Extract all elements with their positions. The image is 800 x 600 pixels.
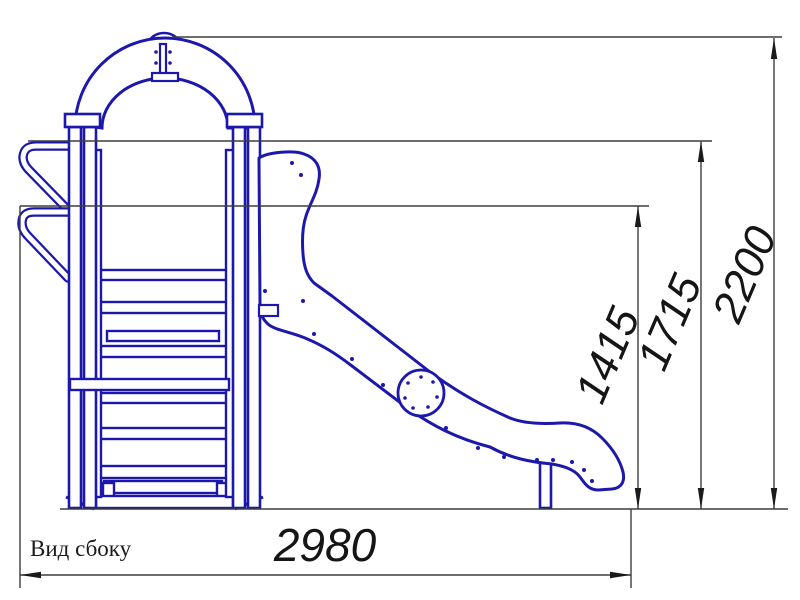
arch-connector-plate <box>160 44 166 76</box>
drawing-canvas: 1415 1715 2200 2980 Вид сбоку <box>0 0 800 600</box>
post-tube <box>84 127 96 508</box>
platform-floor-edge <box>259 305 278 316</box>
slide-support-leg <box>540 462 551 508</box>
ladder-rung <box>99 428 229 439</box>
arrowhead-left <box>20 572 41 578</box>
ladder-rung <box>99 270 229 280</box>
arch-connector-foot <box>152 73 178 81</box>
handrail-lower <box>22 212 74 278</box>
post-tube <box>233 127 245 508</box>
ladder-step <box>100 466 231 478</box>
arrowhead-down <box>771 488 777 509</box>
arrowhead-up <box>635 206 641 227</box>
slide-body <box>259 152 624 490</box>
post-tube <box>69 127 81 508</box>
arrowhead-up <box>771 38 777 59</box>
ladder-rung <box>99 302 229 313</box>
base-beam <box>96 496 233 508</box>
arrowhead-down <box>635 488 641 509</box>
post-cap <box>227 114 262 127</box>
ladder-step <box>107 331 219 341</box>
post-cap <box>65 114 100 127</box>
slide-technical-drawing: 1415 1715 2200 2980 Вид сбоку <box>0 0 800 600</box>
dim-label-2980: 2980 <box>273 519 377 571</box>
platform-rung <box>70 379 229 390</box>
arrowhead-up <box>698 141 704 162</box>
arrowhead-down <box>698 488 704 509</box>
ladder-rung <box>99 346 229 357</box>
view-label: Вид сбоку <box>30 536 132 561</box>
ladder-rung <box>99 393 229 403</box>
ladder-rung <box>104 481 222 493</box>
arrowhead-right <box>610 572 631 578</box>
slide-structure <box>22 33 624 509</box>
